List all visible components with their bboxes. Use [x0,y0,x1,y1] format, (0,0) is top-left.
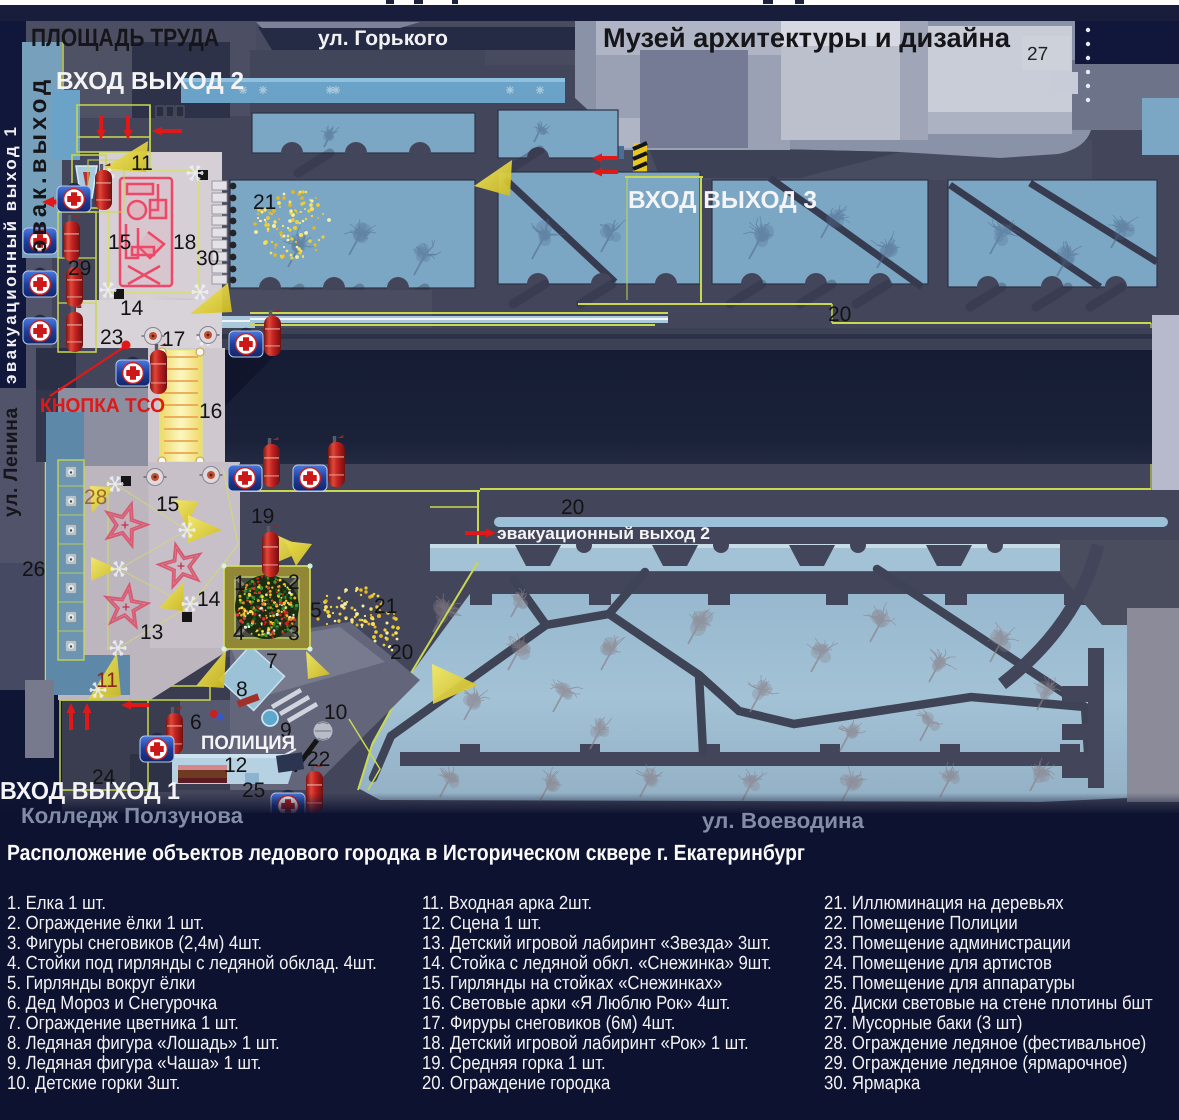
svg-text:28. Ограждение ледяное (фестив: 28. Ограждение ледяное (фестивальное) [824,1033,1146,1054]
svg-text:16. Световые арки «Я Люблю Рок: 16. Световые арки «Я Люблю Рок» 4шт. [422,993,730,1014]
svg-text:22: 22 [307,748,330,771]
svg-text:14: 14 [120,297,144,320]
svg-text:26: 26 [22,558,45,581]
svg-text:12: 12 [224,754,247,777]
svg-text:ВХОД ВЫХОД 2: ВХОД ВЫХОД 2 [56,68,244,95]
svg-text:15. Гирлянды на стойках «Снежи: 15. Гирлянды на стойках «Снежинках» [422,973,722,994]
svg-text:11: 11 [96,669,118,692]
svg-text:14. Стойка с ледяной обкл. «Сн: 14. Стойка с ледяной обкл. «Снежинка» 9ш… [422,953,772,974]
svg-text:6: 6 [190,711,202,734]
svg-text:11. Входная арка 2шт.: 11. Входная арка 2шт. [422,893,592,914]
svg-text:15: 15 [108,231,131,254]
svg-text:5: 5 [310,599,322,622]
svg-text:ПОЛИЦИЯ: ПОЛИЦИЯ [201,732,295,754]
svg-text:25. Помещение для аппаратуры: 25. Помещение для аппаратуры [824,973,1075,994]
svg-text:Музей архитектуры и дизайна: Музей архитектуры и дизайна [603,23,1011,53]
svg-text:4. Стойки под гирлянды с ледян: 4. Стойки под гирлянды с ледяной обклад.… [7,953,377,974]
svg-text:27. Мусорные баки (3 шт): 27. Мусорные баки (3 шт) [824,1013,1022,1034]
svg-text:23. Помещение администрации: 23. Помещение администрации [824,933,1071,954]
svg-text:4: 4 [233,622,245,645]
svg-text:16: 16 [199,400,222,423]
svg-text:1. Елка 1 шт.: 1. Елка 1 шт. [7,893,106,914]
svg-text:12. Сцена 1 шт.: 12. Сцена 1 шт. [422,913,542,934]
svg-text:2. Ограждение ёлки 1 шт.: 2. Ограждение ёлки 1 шт. [7,913,204,934]
svg-text:1: 1 [234,572,246,595]
svg-text:19. Средняя горка 1 шт.: 19. Средняя горка 1 шт. [422,1053,606,1074]
svg-text:10: 10 [324,701,347,724]
svg-text:17: 17 [162,328,185,351]
svg-text:20. Ограждение городка: 20. Ограждение городка [422,1073,611,1094]
svg-text:18: 18 [173,231,196,254]
svg-text:эвак.выход: эвак.выход [25,76,52,253]
svg-text:13. Детский игровой лабиринт «: 13. Детский игровой лабиринт «Звезда» 3ш… [422,933,771,954]
svg-text:ул. Горького: ул. Горького [318,27,448,50]
svg-text:18. Детский игровой лабиринт «: 18. Детский игровой лабиринт «Рок» 1 шт. [422,1033,749,1054]
svg-text:Расположение объектов ледового: Расположение объектов ледового городка в… [7,840,805,865]
svg-text:ВХОД ВЫХОД 1: ВХОД ВЫХОД 1 [0,778,180,805]
svg-text:19: 19 [251,505,274,528]
svg-text:21: 21 [253,191,276,214]
svg-text:5. Гирлянды вокруг ёлки: 5. Гирлянды вокруг ёлки [7,973,195,994]
svg-text:24. Помещение для артистов: 24. Помещение для артистов [824,953,1052,974]
svg-text:21: 21 [374,595,397,618]
svg-text:ул. Ленина: ул. Ленина [0,407,22,517]
svg-text:20: 20 [828,303,851,326]
svg-text:эвакуационный выход 2: эвакуационный выход 2 [497,524,710,543]
svg-text:ВХОД ВЫХОД 3: ВХОД ВЫХОД 3 [628,187,817,214]
svg-text:10. Детские горки 3шт.: 10. Детские горки 3шт. [7,1073,180,1094]
svg-text:7: 7 [266,650,278,673]
svg-text:26. Диски световые на стене пл: 26. Диски световые на стене плотины бшт [824,993,1153,1014]
svg-text:30. Ярмарка: 30. Ярмарка [824,1073,921,1094]
svg-text:Колледж Ползунова: Колледж Ползунова [21,803,244,828]
svg-text:29: 29 [68,257,91,280]
svg-text:20: 20 [390,641,413,664]
svg-text:20: 20 [561,496,584,519]
svg-text:28: 28 [84,486,107,509]
svg-text:3: 3 [288,622,300,645]
svg-text:30: 30 [196,247,219,270]
svg-text:КНОПКА ТСО: КНОПКА ТСО [40,395,165,417]
svg-text:эвакуационный выход 1: эвакуационный выход 1 [1,125,20,384]
svg-text:15: 15 [156,493,179,516]
svg-text:27: 27 [1027,44,1048,65]
svg-text:3. Фигуры снеговиков (2,4м) 4ш: 3. Фигуры снеговиков (2,4м) 4шт. [7,933,262,954]
svg-text:13: 13 [140,621,163,644]
svg-text:8. Ледяная фигура «Лошадь» 1 ш: 8. Ледяная фигура «Лошадь» 1 шт. [7,1033,280,1054]
svg-text:17. Фируры снеговиков (6м) 4шт: 17. Фируры снеговиков (6м) 4шт. [422,1013,675,1034]
svg-text:6. Дед Мороз и Снегурочка: 6. Дед Мороз и Снегурочка [7,993,218,1014]
svg-text:ПЛОЩАДЬ ТРУДА: ПЛОЩАДЬ ТРУДА [31,24,219,52]
svg-text:29. Ограждение ледяное (ярмаро: 29. Ограждение ледяное (ярмарочное) [824,1053,1127,1074]
svg-text:25: 25 [242,779,265,802]
svg-text:9. Ледяная фигура «Чаша» 1 шт.: 9. Ледяная фигура «Чаша» 1 шт. [7,1053,261,1074]
svg-text:8: 8 [236,678,248,701]
svg-text:23: 23 [100,326,123,349]
svg-text:7. Ограждение цветника 1 шт.: 7. Ограждение цветника 1 шт. [7,1013,239,1034]
svg-text:14: 14 [197,588,221,611]
svg-text:2: 2 [288,571,300,594]
svg-text:21. Иллюминация на деревьях: 21. Иллюминация на деревьях [824,893,1064,914]
svg-text:ул. Воеводина: ул. Воеводина [702,808,865,833]
svg-text:22. Помещение Полиции: 22. Помещение Полиции [824,913,1018,934]
svg-text:11: 11 [131,152,153,175]
